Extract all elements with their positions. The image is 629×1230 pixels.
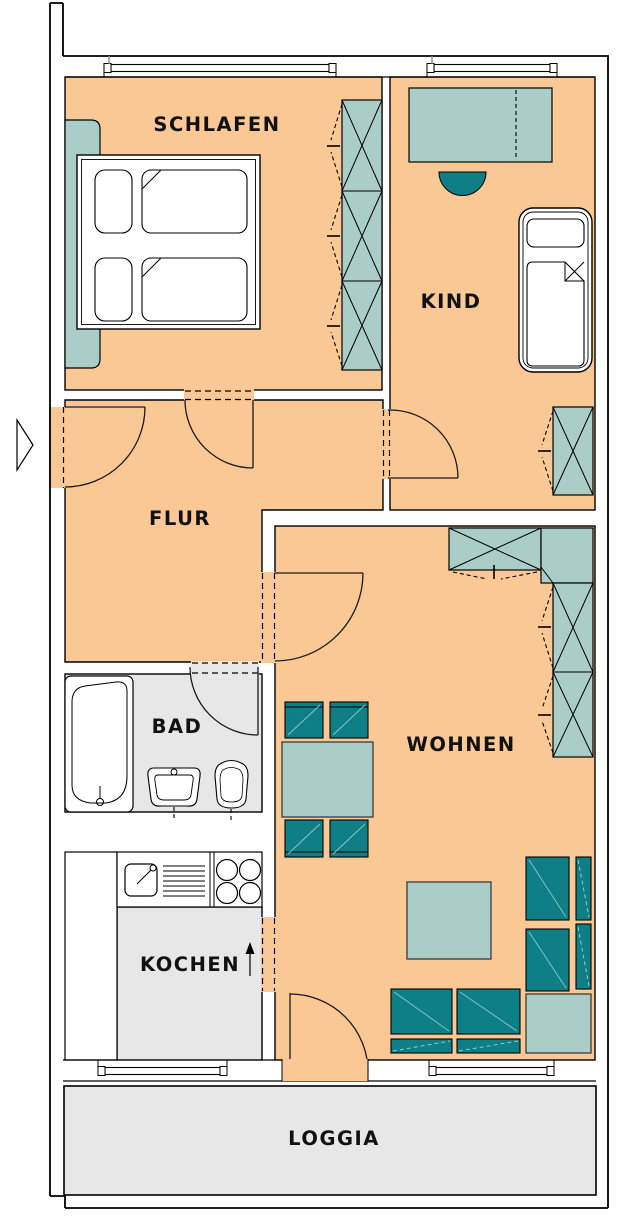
child-bed	[519, 208, 592, 372]
label-kind: KIND	[421, 290, 482, 313]
room-kochen-floor	[117, 907, 262, 1060]
dining-table	[282, 742, 373, 817]
label-bad: BAD	[152, 715, 203, 738]
floor-plan-drawing: SCHLAFEN KIND FLUR BAD WOHNEN KOCHEN LOG…	[0, 0, 629, 1230]
label-schlafen: SCHLAFEN	[153, 113, 280, 136]
window-kind	[427, 56, 557, 77]
wardrobe-corner-unit	[541, 528, 593, 583]
label-flur: FLUR	[149, 507, 211, 530]
desk	[409, 88, 552, 162]
label-kochen: KOCHEN	[140, 953, 240, 976]
double-bed	[77, 155, 260, 329]
bathtub	[65, 676, 133, 812]
corner-table	[526, 994, 591, 1053]
label-loggia: LOGGIA	[288, 1127, 380, 1150]
toilet	[215, 761, 248, 823]
window-schlafen	[104, 56, 336, 77]
label-wohnen: WOHNEN	[406, 733, 515, 756]
entrance-arrow-icon	[17, 420, 33, 470]
floor-plan: SCHLAFEN KIND FLUR BAD WOHNEN KOCHEN LOG…	[0, 0, 629, 1230]
window-wohnen	[429, 1060, 554, 1076]
coffee-table	[407, 882, 491, 959]
tall-cabinet	[65, 852, 117, 1060]
balcony-threshold	[282, 1059, 368, 1081]
window-kochen	[98, 1060, 227, 1076]
